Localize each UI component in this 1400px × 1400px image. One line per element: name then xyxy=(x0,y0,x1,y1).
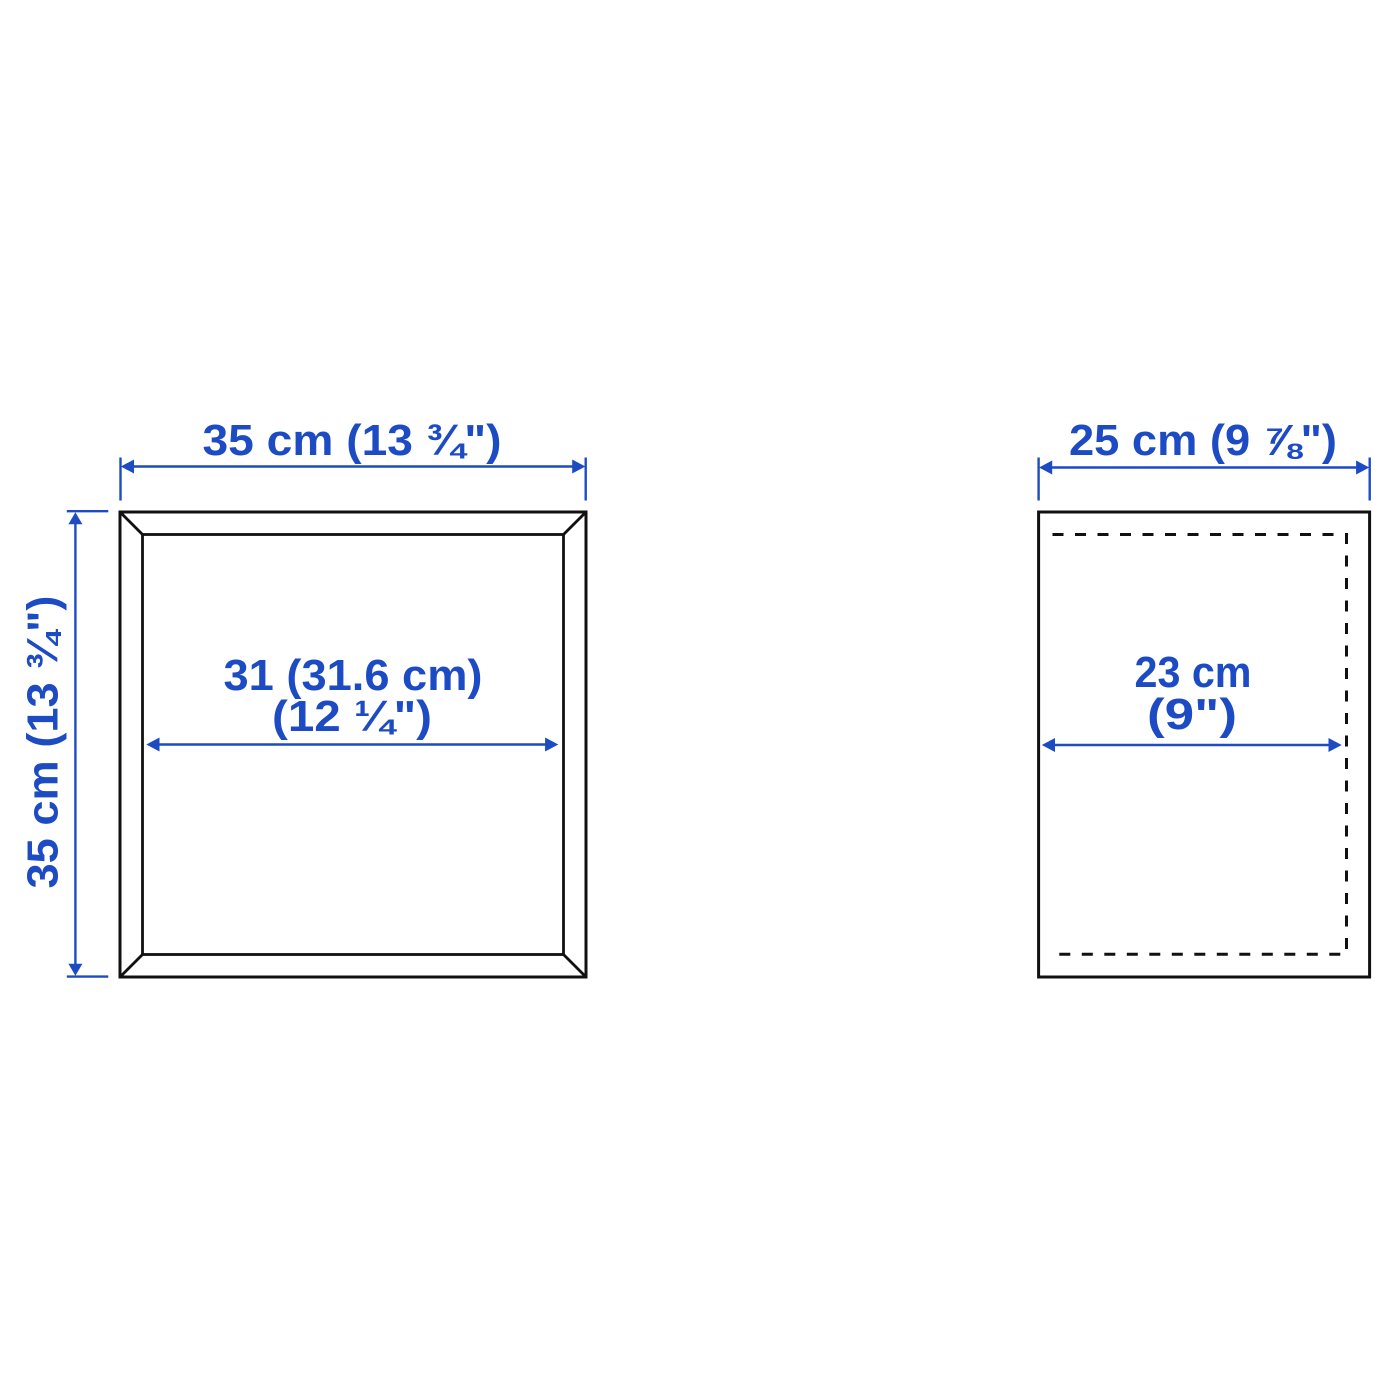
svg-text:(9"): (9") xyxy=(1147,690,1237,739)
svg-text:35 cm (13 ¾"): 35 cm (13 ¾") xyxy=(203,416,502,465)
svg-text:(12 ¼"): (12 ¼") xyxy=(272,692,432,741)
svg-text:35 cm (13 ¾"): 35 cm (13 ¾") xyxy=(19,596,68,889)
svg-text:25 cm (9 ⅞"): 25 cm (9 ⅞") xyxy=(1069,416,1337,465)
